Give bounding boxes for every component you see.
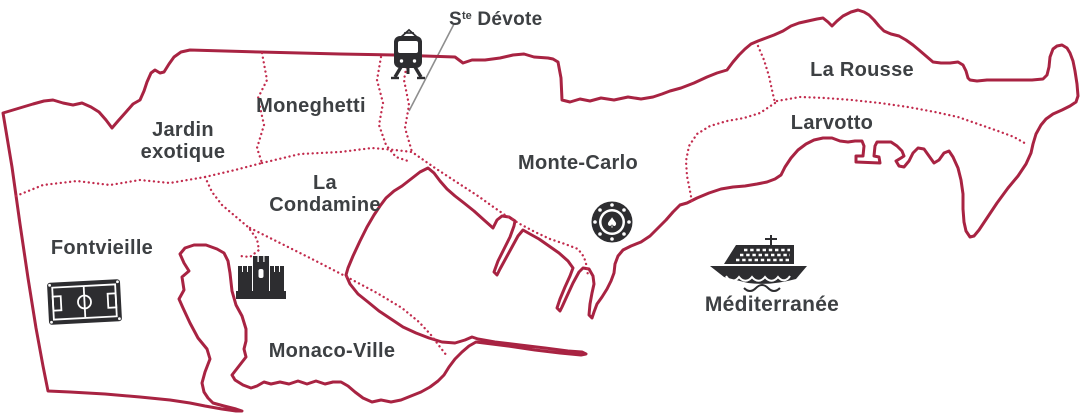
football-stadium-icon: [47, 279, 122, 325]
district-boundary: [205, 177, 259, 257]
district-label-monte-carlo: Monte-Carlo: [518, 152, 638, 174]
district-boundary: [758, 46, 775, 103]
train-icon: [391, 30, 425, 78]
map-canvas: ♠: [0, 0, 1080, 418]
cruise-ship-icon: [710, 235, 807, 291]
district-label-moneghetti: Moneghetti: [256, 95, 366, 117]
monaco-outer-boundary: [3, 10, 1078, 411]
castle-icon: [236, 256, 286, 299]
landmark-prefix: S: [449, 9, 462, 30]
monaco-districts-map: ♠: [0, 0, 1080, 418]
landmark-superscript: te: [462, 10, 472, 22]
sea-label-mediterranee: Méditerranée: [705, 294, 839, 316]
district-label-jardin-exotique: Jardin exotique: [118, 119, 248, 163]
district-label-fontvieille: Fontvieille: [51, 237, 153, 259]
casino-chip-icon: ♠: [592, 202, 633, 243]
landmark-label-ste-devote: Ste Dévote: [449, 5, 543, 31]
district-label-la-rousse: La Rousse: [810, 59, 914, 81]
district-boundary: [377, 57, 408, 161]
district-label-monaco-ville: Monaco-Ville: [269, 340, 396, 362]
district-label-larvotto: Larvotto: [791, 112, 873, 134]
district-label-la-condamine: La Condamine: [263, 172, 387, 216]
landmark-name: Dévote: [477, 9, 542, 30]
district-boundary: [16, 163, 262, 196]
spade-glyph: ♠: [606, 216, 619, 232]
